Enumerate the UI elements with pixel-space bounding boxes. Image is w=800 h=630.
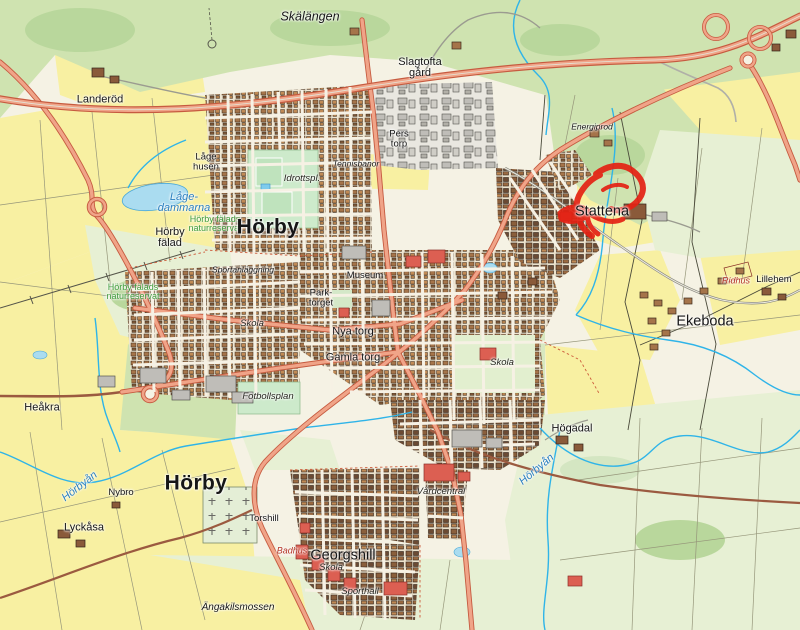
map-canvas (0, 0, 800, 630)
cemetery-area (203, 487, 257, 543)
topographic-map[interactable]: SkälängenLanderödSlagtofta gårdPers torp… (0, 0, 800, 630)
